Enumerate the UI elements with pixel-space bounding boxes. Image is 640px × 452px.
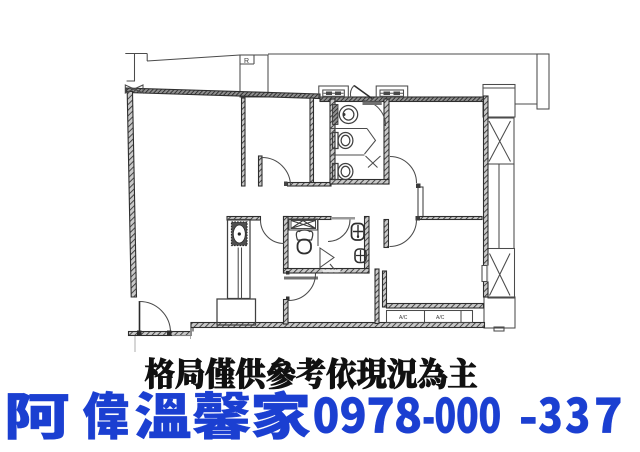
svg-text:A/C: A/C	[399, 315, 408, 321]
svg-text:R: R	[244, 58, 249, 65]
svg-text:A/C: A/C	[436, 315, 445, 321]
